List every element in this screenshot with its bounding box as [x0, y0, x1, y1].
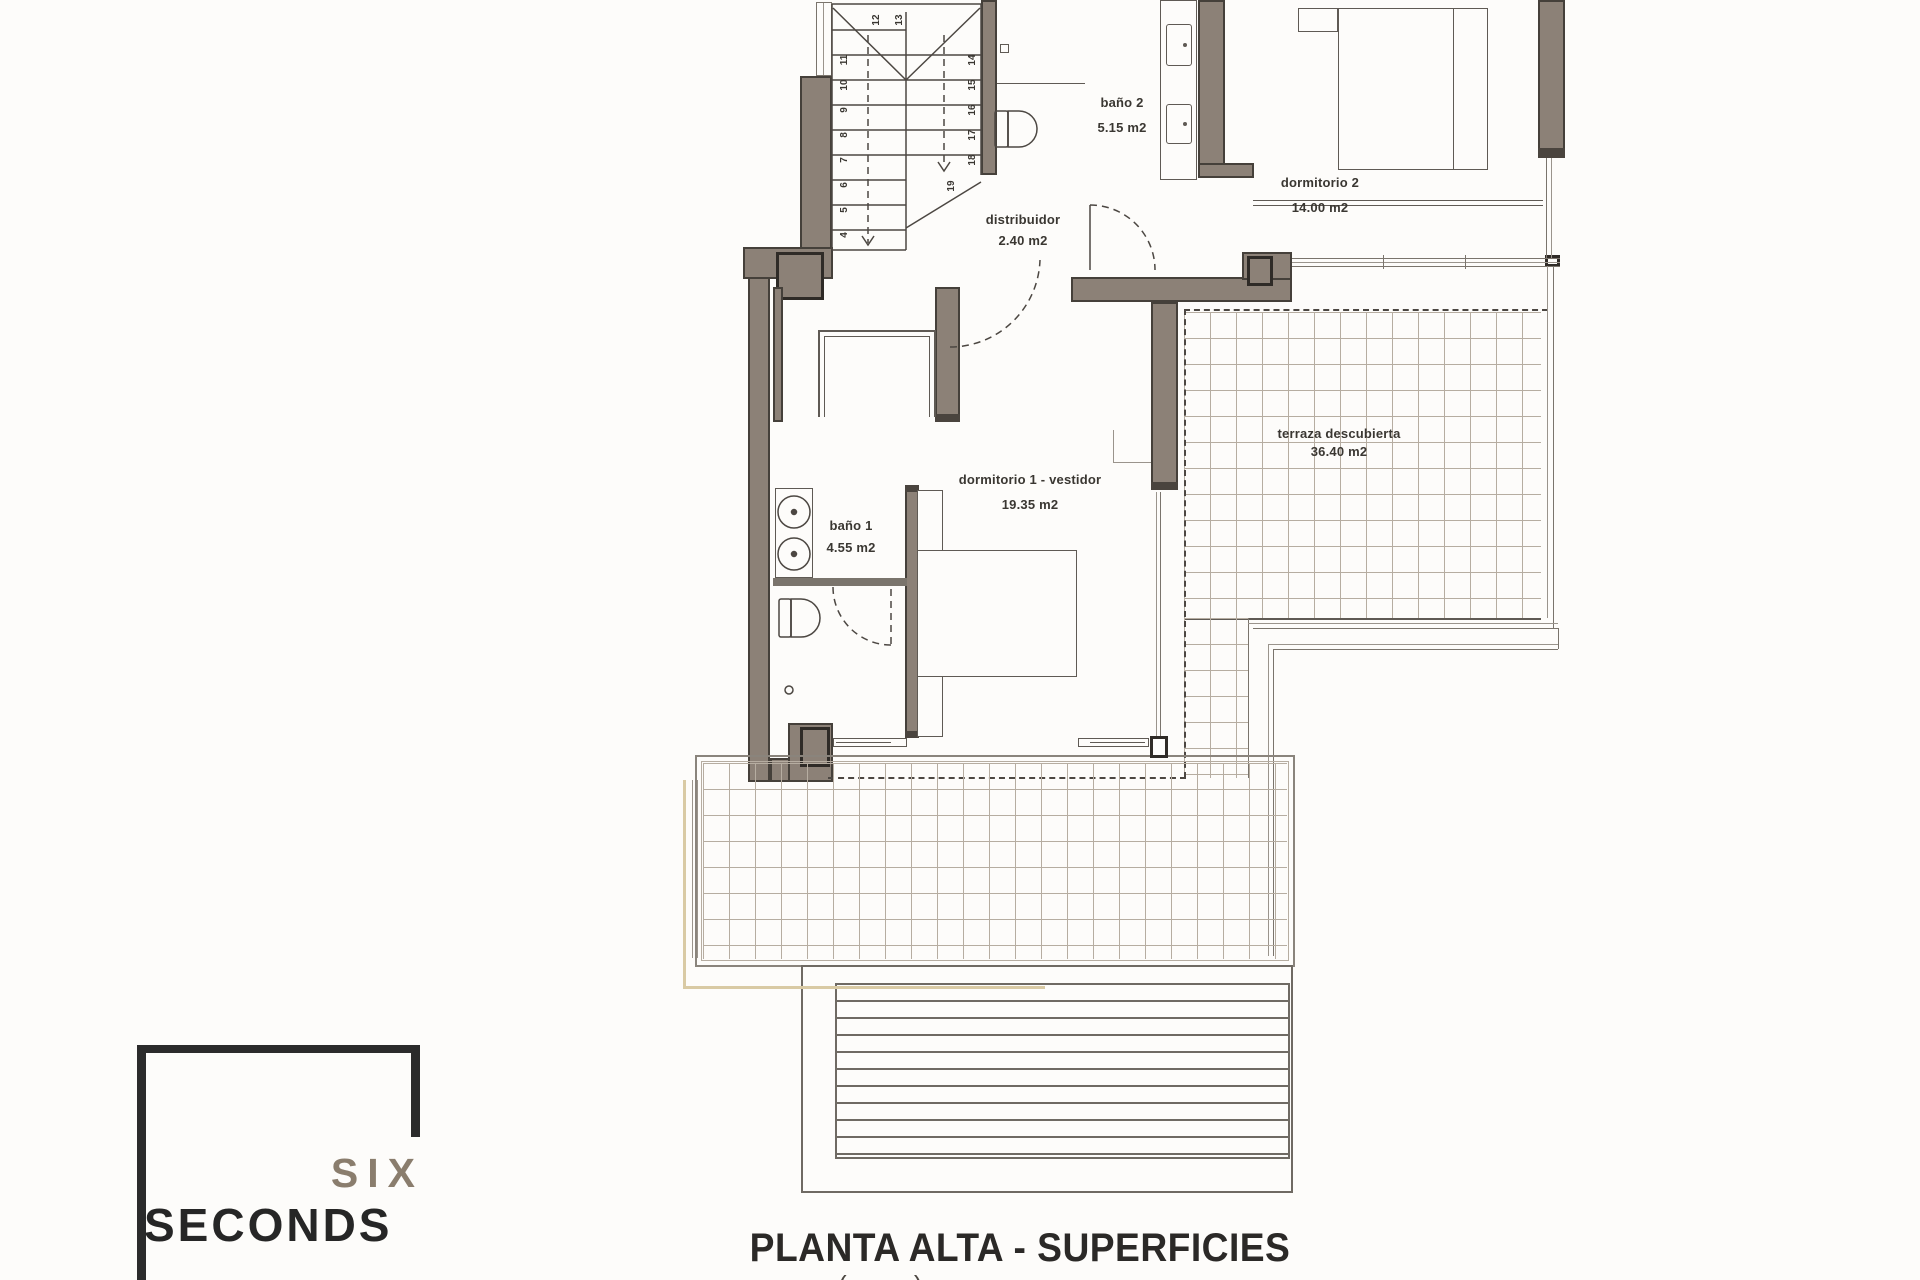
stair-step-number: 13 [894, 9, 906, 31]
logo-square-right [411, 1045, 420, 1137]
logo-text-seconds: SECONDS [144, 1198, 434, 1252]
door-arc [1090, 205, 1155, 270]
stair-step-number: 8 [839, 124, 851, 146]
room-label-area: 36.40 m2 [1311, 444, 1368, 459]
room-label-area: 2.40 m2 [998, 233, 1047, 248]
stair-step-number: 10 [839, 74, 851, 96]
accent-line [683, 780, 686, 988]
floorplan-page: 4 5 6 7 8 9 10 11 12 13 14 15 16 17 18 1… [0, 0, 1920, 1280]
sliding-door-leaf [836, 742, 891, 743]
glass-tick [1383, 255, 1384, 269]
sink-basin [1166, 24, 1192, 66]
drain-dot [785, 686, 793, 694]
corner-post [1150, 736, 1168, 758]
stair-step-number: 5 [839, 199, 851, 221]
parapet-line [1253, 628, 1558, 629]
wall-cap [1151, 482, 1178, 490]
wall-segment [748, 277, 770, 782]
glass-balustrade [1546, 158, 1547, 258]
room-label-name: dormitorio 2 [1281, 175, 1359, 190]
room-label-area: 14.00 m2 [1292, 200, 1349, 215]
glass-balustrade [1551, 158, 1552, 258]
parapet-line [1558, 628, 1559, 649]
glass-tick [1465, 255, 1466, 269]
edge-line [697, 780, 698, 958]
room-label-name: baño 1 [829, 518, 872, 533]
glass-divider [1160, 492, 1161, 736]
edge-line [692, 780, 693, 958]
stair-step-number: 15 [967, 74, 979, 96]
vanity-counter [775, 488, 813, 578]
terrace-dashed-boundary [1184, 309, 1186, 778]
wall-pillar [1247, 256, 1273, 286]
window [816, 2, 832, 76]
door-arc [833, 587, 891, 645]
sliding-door-leaf [1090, 742, 1145, 743]
stair-step-number: 9 [839, 99, 851, 121]
bed [917, 550, 1077, 677]
parapet-line [1547, 266, 1548, 618]
room-label-area: 4.55 m2 [826, 540, 875, 555]
bed-pillow-line [1453, 9, 1454, 169]
room-label-name: terraza descubierta [1277, 426, 1400, 441]
toilet-fixture [995, 111, 1037, 147]
accent-line [683, 986, 1045, 989]
wall-segment [935, 287, 960, 422]
partition-wall [773, 578, 907, 586]
room-label-name: distribuidor [986, 212, 1061, 227]
wall-segment [1198, 163, 1254, 178]
parapet-line [1248, 623, 1558, 624]
lower-terrace-tile-grid [703, 763, 1287, 959]
glass-divider [1156, 492, 1157, 736]
stair-diagonal [833, 8, 980, 80]
logo-text-six: SIX [238, 1150, 424, 1197]
terrace-dashed-boundary [1184, 309, 1548, 311]
stair-step-number: 19 [946, 175, 958, 197]
pergola-louvers [835, 983, 1290, 1159]
window-line [823, 3, 824, 75]
sink-dot [1183, 43, 1187, 47]
threshold-line [1113, 462, 1151, 463]
sink-dot [1183, 122, 1187, 126]
stair-step-number: 14 [967, 49, 979, 71]
logo-square-top [137, 1045, 420, 1053]
stair-step-number: 6 [839, 174, 851, 196]
stair-step-number: 17 [967, 124, 979, 146]
shower-drain [1000, 44, 1009, 53]
terrace-tile-grid [1184, 618, 1249, 778]
shower-screen [997, 83, 1085, 84]
bed [1338, 8, 1488, 170]
room-label-area: 5.15 m2 [1097, 120, 1146, 135]
stair-step-number: 16 [967, 99, 979, 121]
terrace-tile-grid [1184, 312, 1541, 620]
stair-step-number: 18 [967, 149, 979, 171]
wall-segment [981, 0, 997, 175]
walkline-arrow [938, 162, 950, 171]
wardrobe-inner [824, 336, 930, 417]
door-arc [950, 260, 1040, 347]
wall-segment [1151, 302, 1178, 488]
room-label-name: dormitorio 1 - vestidor [959, 472, 1102, 487]
parapet-line [1268, 644, 1558, 645]
sink-basin [1166, 104, 1192, 144]
stair-outline [832, 4, 981, 250]
wall-segment [1198, 0, 1225, 165]
walkline-arrow [862, 236, 874, 245]
parapet-line [1553, 266, 1554, 628]
wall-cap [935, 414, 960, 422]
stair-step-number: 11 [839, 49, 851, 71]
nightstand [1298, 8, 1338, 32]
stair-step-number: 4 [839, 224, 851, 246]
threshold-line [1113, 430, 1114, 463]
toilet-fixture [779, 599, 820, 637]
wall-pillar [776, 252, 824, 300]
glass-balustrade [1292, 266, 1560, 267]
clipped-subtitle: ( ) [838, 1270, 978, 1280]
stair-step-number: 7 [839, 149, 851, 171]
wall-segment [1538, 0, 1565, 158]
parapet-line [1273, 649, 1558, 650]
wall-segment [800, 76, 832, 250]
page-title: PLANTA ALTA - SUPERFICIES [722, 1226, 1317, 1271]
glass-balustrade [1292, 258, 1560, 259]
wall-segment [773, 287, 783, 422]
room-label-name: baño 2 [1100, 95, 1143, 110]
wall-cap [1538, 148, 1565, 158]
stair-step-number: 12 [871, 9, 883, 31]
glass-balustrade [1292, 262, 1560, 263]
room-label-area: 19.35 m2 [1002, 497, 1059, 512]
